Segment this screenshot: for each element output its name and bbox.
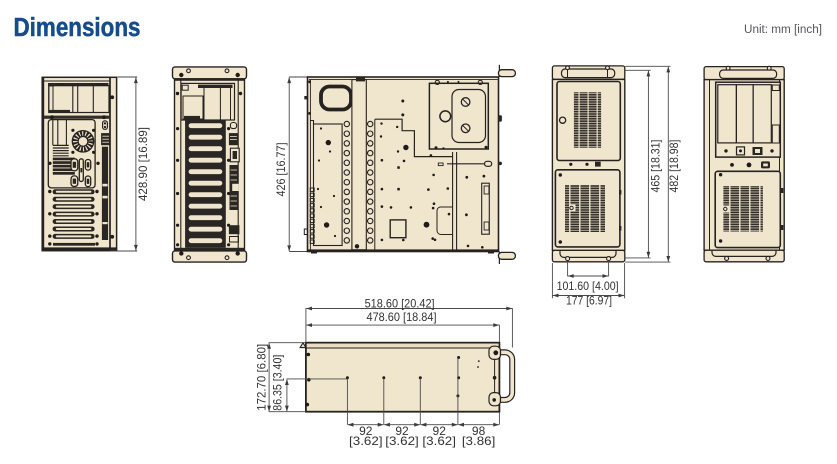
svg-text:[3.86]: [3.86] <box>462 434 496 448</box>
svg-text:177 [6.97]: 177 [6.97] <box>566 294 612 308</box>
svg-text:172.70 [6.80]: 172.70 [6.80] <box>255 344 269 411</box>
svg-text:428.90 [16.89]: 428.90 [16.89] <box>136 127 150 201</box>
svg-text:465 [18.31]: 465 [18.31] <box>649 140 663 193</box>
svg-text:[3.62]: [3.62] <box>422 434 456 448</box>
svg-text:[3.62]: [3.62] <box>349 434 383 448</box>
svg-text:426 [16.77]: 426 [16.77] <box>274 143 288 197</box>
svg-text:Dimensions: Dimensions <box>14 14 141 42</box>
svg-text:482 [18.98]: 482 [18.98] <box>667 140 681 193</box>
svg-text:101.60 [4.00]: 101.60 [4.00] <box>557 279 619 293</box>
svg-text:478.60 [18.84]: 478.60 [18.84] <box>367 310 437 324</box>
svg-text:[3.62]: [3.62] <box>385 434 419 448</box>
svg-text:86.35 [3.40]: 86.35 [3.40] <box>271 355 285 411</box>
svg-text:518.60 [20.42]: 518.60 [20.42] <box>365 296 435 310</box>
svg-text:Unit: mm [inch]: Unit: mm [inch] <box>744 24 822 36</box>
